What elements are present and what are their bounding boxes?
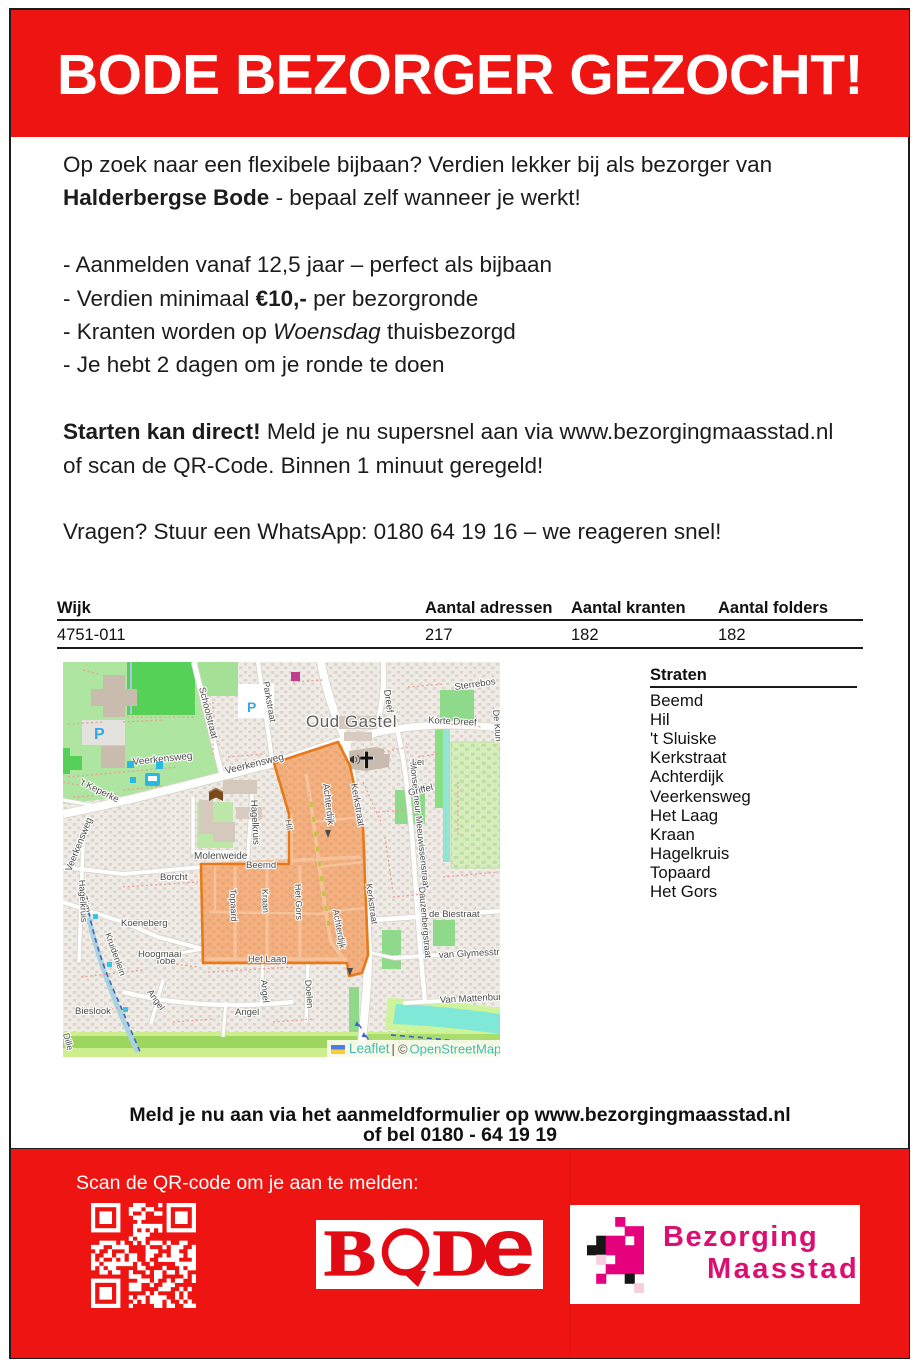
- svg-text:OpenStreetMap: OpenStreetMap: [410, 1042, 501, 1057]
- svg-text:Angel: Angel: [235, 1007, 259, 1018]
- svg-text:Hil: Hil: [283, 819, 295, 831]
- svg-text:Het Gors: Het Gors: [293, 884, 304, 921]
- svg-text:e: e: [481, 1220, 535, 1289]
- svg-text:P: P: [94, 726, 105, 743]
- svg-text:de Biestraat: de Biestraat: [429, 909, 480, 920]
- svg-text:Angel: Angel: [259, 979, 271, 1003]
- svg-text:Leaflet: Leaflet: [349, 1041, 390, 1056]
- svg-text:Hoogmaai: Hoogmaai: [138, 949, 181, 960]
- svg-text:Kraan: Kraan: [260, 889, 271, 913]
- svg-text:Bieslook: Bieslook: [75, 1006, 111, 1017]
- svg-text:Beemd: Beemd: [246, 860, 276, 871]
- svg-text:|: |: [392, 1042, 395, 1057]
- svg-text:Oud Gastel: Oud Gastel: [306, 712, 397, 731]
- svg-text:Topaard: Topaard: [228, 889, 239, 922]
- svg-text:©: ©: [398, 1042, 408, 1057]
- svg-text:Het Laag: Het Laag: [248, 954, 287, 965]
- svg-text:B: B: [324, 1220, 376, 1289]
- svg-text:Koeneberg: Koeneberg: [121, 918, 167, 929]
- svg-text:Molenweide: Molenweide: [194, 851, 248, 862]
- svg-text:Lei: Lei: [412, 757, 424, 767]
- svg-text:Borcht: Borcht: [160, 872, 188, 883]
- svg-text:P: P: [247, 699, 256, 715]
